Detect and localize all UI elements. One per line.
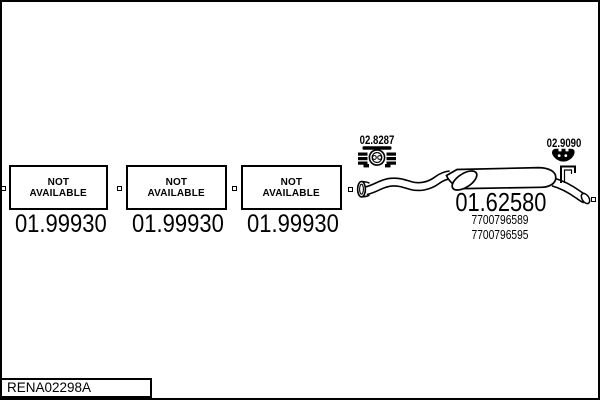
silencer-part-number[interactable]: 01.62580 [455, 190, 542, 214]
oem-number-2: 7700796595 [459, 229, 541, 242]
part-number-3[interactable]: 01.99930 [247, 212, 336, 236]
drawing-code: RENA02298A [7, 380, 91, 395]
not-available-line2: AVAILABLE [30, 188, 87, 199]
not-available-line2: AVAILABLE [148, 188, 205, 199]
connector-node-2 [117, 186, 122, 191]
rubber-hanger-icon [552, 149, 575, 162]
inlet-pipe [366, 175, 450, 191]
not-available-box-1: NOT AVAILABLE [9, 165, 108, 210]
not-available-box-3: NOT AVAILABLE [241, 165, 342, 210]
exhaust-parts-diagram-page: NOT AVAILABLE 01.99930 NOT AVAILABLE 01.… [0, 0, 600, 400]
connector-node-3 [232, 186, 237, 191]
band-clamp-icon [358, 146, 396, 167]
not-available-line2: AVAILABLE [263, 188, 320, 199]
connector-node-1 [1, 186, 6, 191]
clamp-part-number[interactable]: 02.8287 [355, 134, 398, 146]
drawing-code-box: RENA02298A [0, 378, 152, 398]
part-number-1[interactable]: 01.99930 [15, 212, 102, 236]
not-available-box-2: NOT AVAILABLE [126, 165, 227, 210]
tailpipe [553, 182, 591, 205]
part-number-2[interactable]: 01.99930 [132, 212, 221, 236]
tailpipe-end [580, 192, 592, 205]
oem-number-1: 7700796589 [459, 214, 541, 227]
hanger-part-number[interactable]: 02.9090 [542, 137, 585, 149]
